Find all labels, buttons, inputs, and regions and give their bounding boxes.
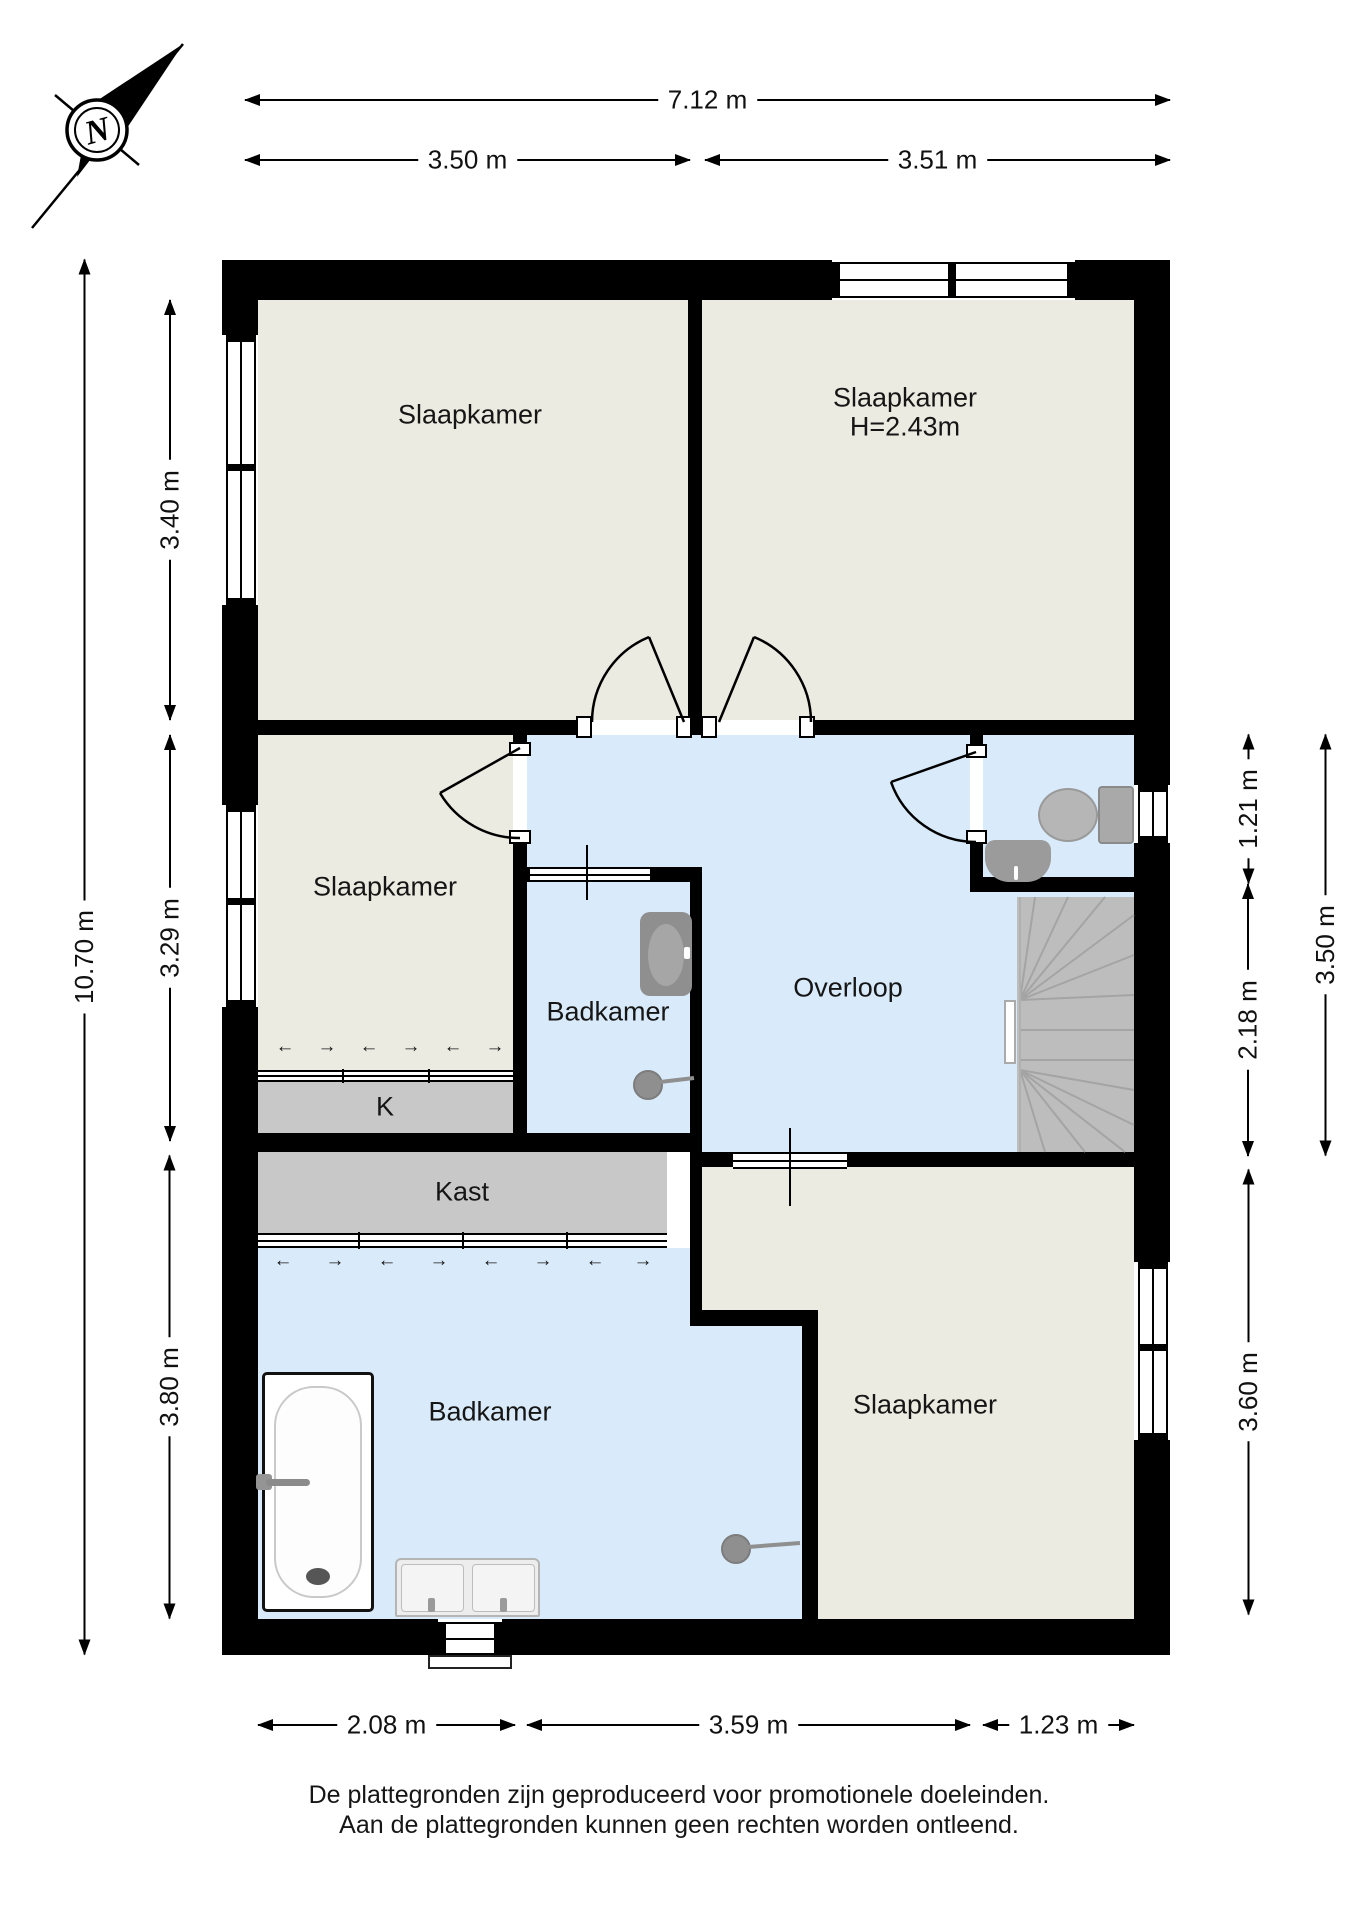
compass-north-icon: N [32,44,183,228]
door-bedroom-middle-left [440,748,520,838]
door-bedroom-top-left [592,637,684,722]
door-toilet-room [891,752,976,842]
shower-arms [660,1078,800,1547]
floor-plan: Slaapkamer Slaapkamer H=2.43m Slaapkamer… [0,0,1358,1920]
door-bedroom-top-right [719,637,811,722]
plan-overlay: N [0,0,1358,1920]
stairs-treads [1020,897,1134,1152]
